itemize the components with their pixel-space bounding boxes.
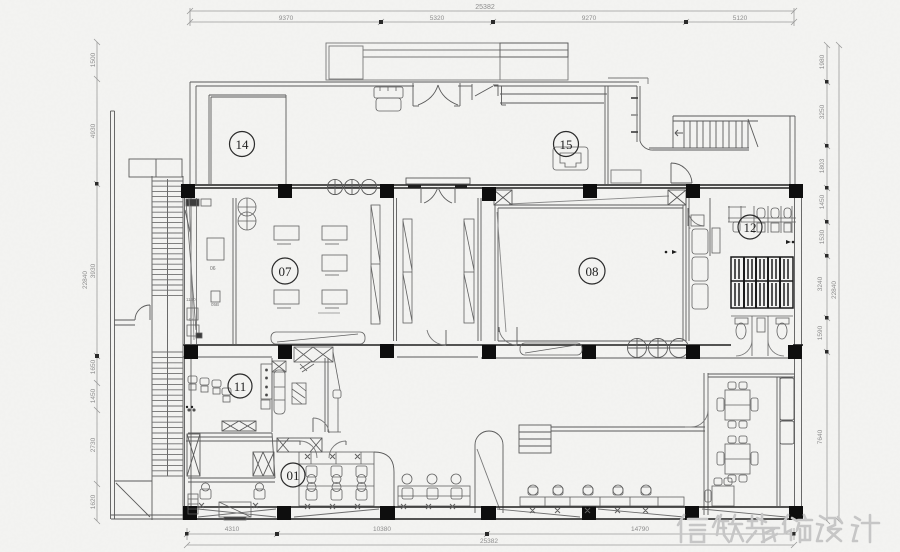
svg-text:5120: 5120	[733, 15, 748, 22]
svg-text:10380: 10380	[373, 526, 391, 533]
svg-text:05B: 05B	[211, 302, 219, 307]
svg-text:04: 04	[189, 317, 195, 322]
svg-text:1980: 1980	[819, 54, 826, 69]
svg-text:08: 08	[586, 264, 599, 279]
svg-text:9370: 9370	[279, 15, 294, 22]
svg-text:14790: 14790	[631, 526, 649, 533]
svg-text:4310: 4310	[225, 526, 240, 533]
svg-text:9270: 9270	[582, 15, 597, 22]
svg-text:3240: 3240	[817, 276, 824, 291]
svg-text:15: 15	[560, 137, 573, 152]
svg-text:01: 01	[287, 468, 300, 483]
svg-text:25382: 25382	[480, 538, 498, 545]
svg-text:1500: 1500	[90, 52, 97, 67]
svg-text:1150: 1150	[186, 297, 196, 302]
svg-text:1450: 1450	[90, 388, 97, 403]
svg-text:11: 11	[234, 379, 247, 394]
svg-text:4930: 4930	[90, 123, 97, 138]
svg-text:1803: 1803	[819, 158, 826, 173]
svg-text:1450: 1450	[819, 194, 826, 209]
svg-text:14: 14	[236, 137, 250, 152]
svg-text:25382: 25382	[475, 4, 495, 11]
svg-text:1590: 1590	[817, 325, 824, 340]
svg-text:7640: 7640	[817, 429, 824, 444]
svg-text:1620: 1620	[90, 494, 97, 509]
svg-text:3930: 3930	[90, 263, 97, 278]
svg-text:1650: 1650	[90, 359, 97, 374]
svg-text:12: 12	[744, 220, 757, 235]
svg-text:06: 06	[210, 266, 216, 272]
svg-text:2730: 2730	[90, 437, 97, 452]
svg-text:22840: 22840	[82, 271, 89, 289]
svg-text:22840: 22840	[831, 281, 838, 299]
svg-text:07: 07	[279, 264, 293, 279]
svg-text:3250: 3250	[819, 104, 826, 119]
svg-text:1530: 1530	[819, 229, 826, 244]
svg-text:5320: 5320	[430, 15, 445, 22]
